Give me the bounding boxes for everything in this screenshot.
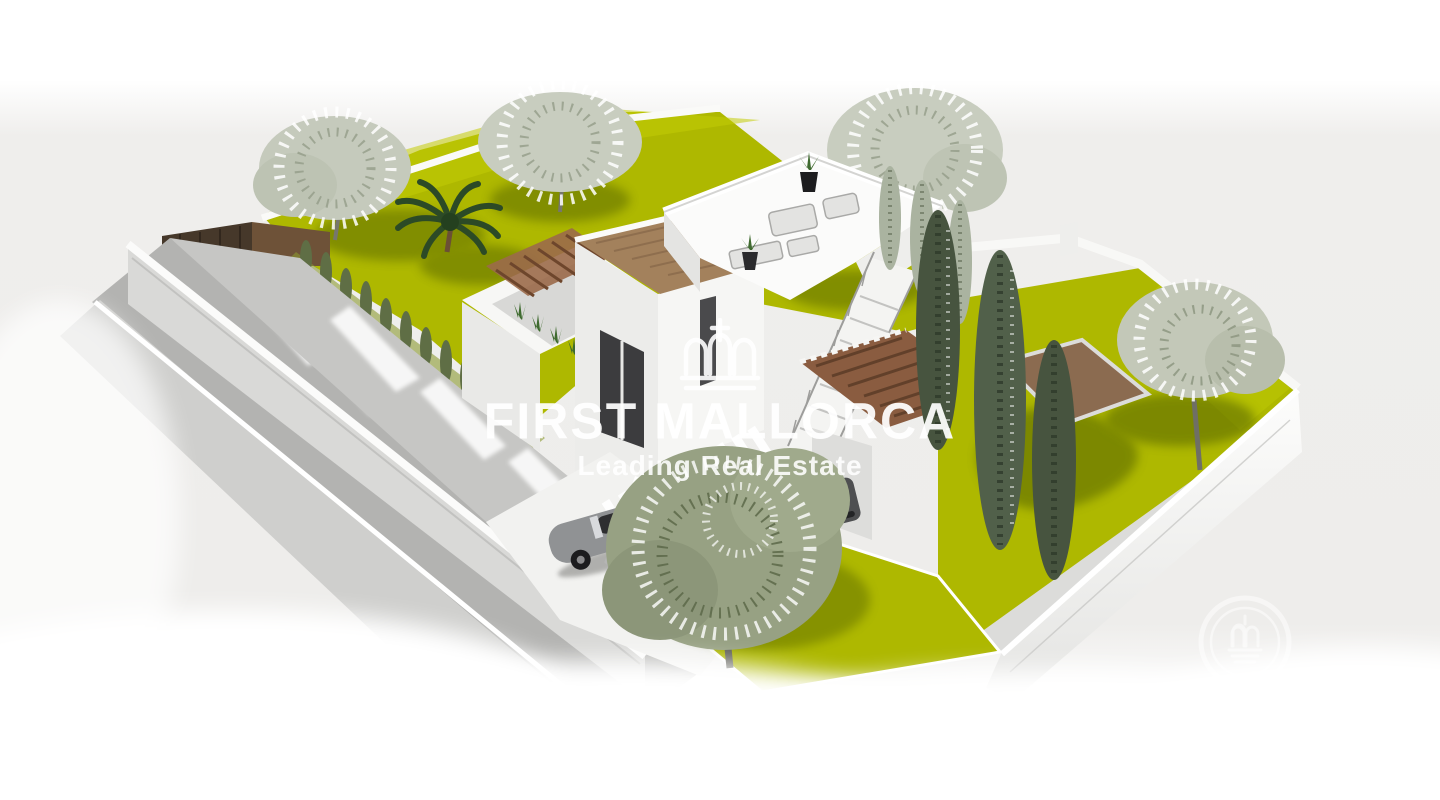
listing-photo-3d-rendering: FIRST MALLORCA Leading Real Estate [0,0,1440,800]
rendering-scene [0,0,1440,800]
upper-window-slit [700,296,716,386]
